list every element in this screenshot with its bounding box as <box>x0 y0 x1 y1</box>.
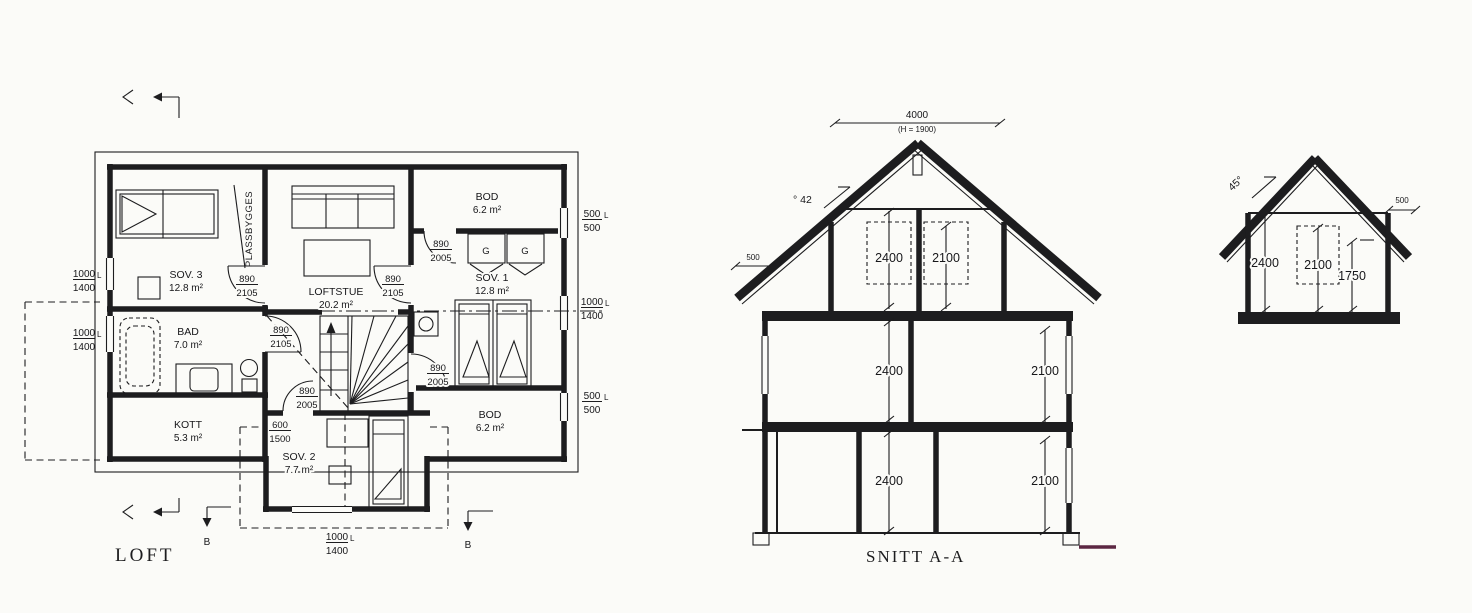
dim-right-lower: 500 L 500 <box>582 391 609 416</box>
svg-text:1400: 1400 <box>326 546 349 557</box>
dim-left-lower: 1000 L 1400 <box>73 328 102 353</box>
stool-sov2 <box>329 466 351 484</box>
room-name-sov2: SOV. 2 <box>283 451 316 463</box>
door-label-sov1-w: 890 <box>430 363 446 374</box>
room-name-sov3: SOV. 3 <box>170 269 203 281</box>
svg-text:500: 500 <box>584 223 601 234</box>
svg-text:1400: 1400 <box>73 283 96 294</box>
ridge-post <box>913 155 922 175</box>
door-label-hall-w: 890 <box>299 386 315 397</box>
gable-height-knee: 1750 <box>1338 269 1366 283</box>
gable-pitch-marker: 45° <box>1226 174 1276 198</box>
dresser-sov2 <box>327 419 368 447</box>
bathtub <box>120 318 160 394</box>
svg-text:500: 500 <box>584 209 601 220</box>
room-area-sov1: 12.8 m² <box>475 286 510 297</box>
svg-text:L: L <box>604 211 609 220</box>
room-area-sov2: 7.7 m² <box>285 465 314 476</box>
window-right-upper <box>558 208 570 238</box>
room-name-bad: BAD <box>177 326 199 338</box>
room-name-bod-bottom: BOD <box>479 409 502 421</box>
svg-text:1000: 1000 <box>326 532 349 543</box>
room-area-bad: 7.0 m² <box>174 340 203 351</box>
svg-text:L: L <box>604 393 609 402</box>
dim-right-middle: 1000 L 1400 <box>581 297 610 322</box>
second-floor: 2400 2100 <box>759 318 1075 424</box>
window-right-lower <box>558 393 570 421</box>
loft-floor-slab <box>762 311 1073 321</box>
svg-text:1400: 1400 <box>73 342 96 353</box>
door-label-bod-top-w: 890 <box>433 239 449 250</box>
roof-outline <box>95 152 578 472</box>
first-floor: 2400 2100 <box>765 429 1075 535</box>
room-name-sov1: SOV. 1 <box>476 272 509 284</box>
wardrobe-cabinets <box>468 234 544 275</box>
room-area-bod-top: 6.2 m² <box>473 205 502 216</box>
room-area-bod-bottom: 6.2 m² <box>476 423 505 434</box>
washing-machine <box>414 312 438 336</box>
svg-text:1000: 1000 <box>581 297 604 308</box>
view-chevron-top <box>123 90 133 104</box>
drawing-canvas: PLASSBYGGES G G SOV. 3 12.8 m² LOFTSTUE … <box>0 0 1472 613</box>
section-title: SNITT A-A <box>866 547 965 566</box>
loft-level: 2400 2100 <box>831 208 1004 311</box>
cut-arrow-bottom <box>153 508 162 517</box>
bed-sov1 <box>455 300 531 388</box>
plan-title: LOFT <box>115 545 175 566</box>
foundation <box>753 533 1116 547</box>
room-area-kott: 5.3 m² <box>174 433 203 444</box>
window-right-middle <box>558 296 570 330</box>
wardrobe-label-left: G <box>482 246 489 257</box>
walls <box>107 164 567 512</box>
marker-b-left: B <box>203 507 232 548</box>
floor2-height-right: 2100 <box>1031 364 1059 378</box>
wardrobe-label-right: G <box>521 246 528 257</box>
gable-height-clear: 2100 <box>1304 258 1332 272</box>
svg-text:500: 500 <box>584 405 601 416</box>
plassbygges-note: PLASSBYGGES <box>244 191 255 267</box>
nightstand-sov3 <box>138 277 160 299</box>
room-name-loftstue: LOFTSTUE <box>309 286 364 298</box>
svg-text:500: 500 <box>1395 196 1409 205</box>
floor1-height-right: 2100 <box>1031 474 1059 488</box>
second-floor-slab <box>762 422 1073 432</box>
width-dim: 4000 <box>906 110 929 121</box>
door-label-hall-h: 2005 <box>296 400 317 411</box>
width-note: (H = 1900) <box>898 125 936 134</box>
cut-arrow-top <box>153 93 162 102</box>
svg-text:1000: 1000 <box>73 269 96 280</box>
loft-height-left: 2400 <box>875 251 903 265</box>
svg-text:° 42: ° 42 <box>793 194 812 206</box>
toilet <box>241 360 258 393</box>
floor-plan: PLASSBYGGES G G SOV. 3 12.8 m² LOFTSTUE … <box>25 90 610 566</box>
room-area-sov3: 12.8 m² <box>169 283 204 294</box>
ridge-width-dimension: 4000 (H = 1900) <box>830 110 1005 134</box>
dim-right-upper: 500 L 500 <box>582 209 609 234</box>
window-bay <box>292 504 352 515</box>
svg-text:B: B <box>204 537 211 548</box>
floor2-height-left: 2400 <box>875 364 903 378</box>
gable-height-wall: 2400 <box>1251 256 1279 270</box>
marker-b-right: B <box>464 511 494 551</box>
bed-sov2 <box>369 416 408 508</box>
door-label-bod-top-h: 2005 <box>430 253 451 264</box>
svg-text:1000: 1000 <box>73 328 96 339</box>
door-label-loftstue-h: 2105 <box>382 288 403 299</box>
svg-text:45°: 45° <box>1226 174 1246 194</box>
gable-section: 45° 500 2400 2100 <box>1222 158 1420 324</box>
sofa-loftstue <box>292 186 394 228</box>
door-label-kott-h: 1500 <box>269 434 290 445</box>
door-label-sov3-w: 890 <box>239 274 255 285</box>
svg-text:1400: 1400 <box>581 311 604 322</box>
door-label-loftstue-w: 890 <box>385 274 401 285</box>
view-chevron-bottom <box>123 505 133 519</box>
svg-text:L: L <box>97 271 102 280</box>
architectural-drawing-sheet: PLASSBYGGES G G SOV. 3 12.8 m² LOFTSTUE … <box>0 0 1472 613</box>
room-area-loftstue: 20.2 m² <box>319 300 354 311</box>
svg-text:500: 500 <box>584 391 601 402</box>
window-left-lower <box>104 316 116 352</box>
svg-text:L: L <box>605 299 610 308</box>
dashed-extension-outline <box>25 302 100 460</box>
room-name-bod-top: BOD <box>476 191 499 203</box>
svg-text:L: L <box>350 534 355 543</box>
door-label-sov3-h: 2105 <box>236 288 257 299</box>
window-left-upper <box>104 258 116 290</box>
coffee-table <box>304 240 370 276</box>
door-label-kott-w: 600 <box>272 420 288 431</box>
room-name-kott: KOTT <box>174 419 203 431</box>
dim-bottom: 1000 L 1400 <box>326 532 355 557</box>
section-aa: 4000 (H = 1900) ° 42 500 <box>731 110 1116 566</box>
svg-text:L: L <box>97 330 102 339</box>
eave-dimension: 500 <box>731 253 776 270</box>
dim-left-upper: 1000 L 1400 <box>73 269 102 294</box>
vanity-sink <box>176 364 232 394</box>
loft-height-right: 2100 <box>932 251 960 265</box>
door-label-bad-h: 2105 <box>270 339 291 350</box>
floor1-height-left: 2400 <box>875 474 903 488</box>
gable-eave-dimension: 500 <box>1384 196 1420 214</box>
windows <box>104 208 570 515</box>
bed-sov3 <box>116 190 218 238</box>
svg-text:500: 500 <box>746 253 760 262</box>
door-label-sov1-h: 2005 <box>427 377 448 388</box>
door-label-bad-w: 890 <box>273 325 289 336</box>
svg-text:B: B <box>465 540 472 551</box>
